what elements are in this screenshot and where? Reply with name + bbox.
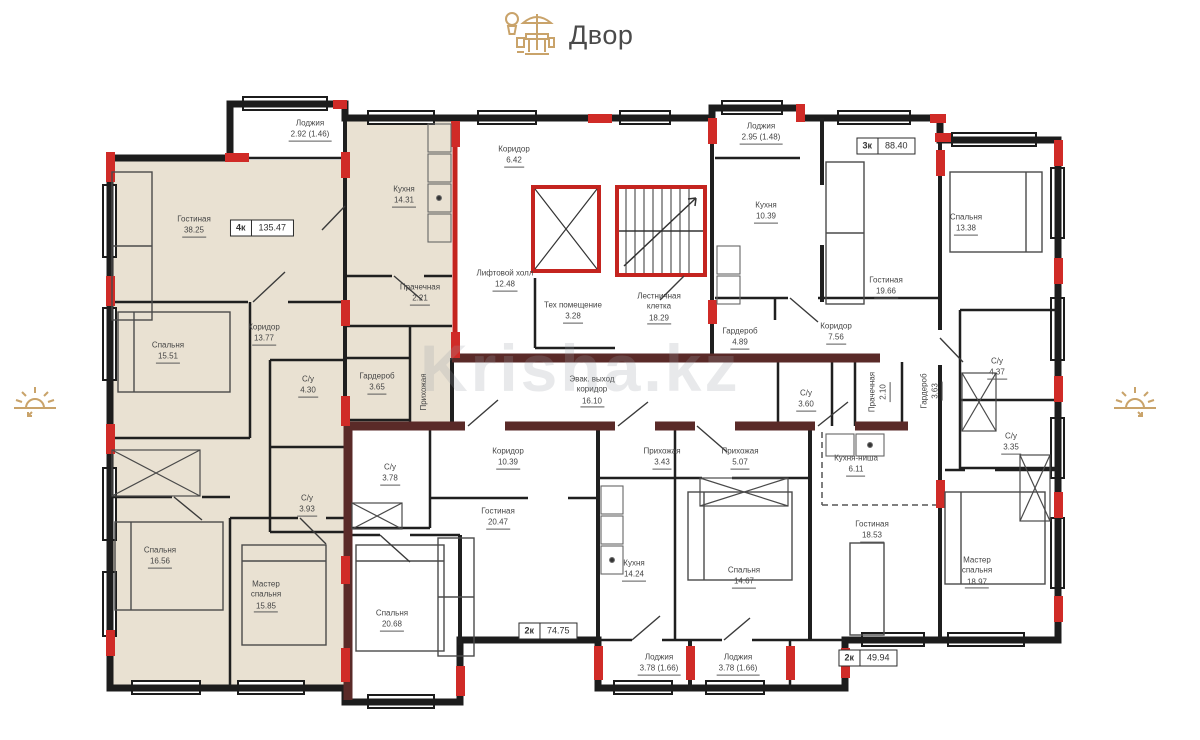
floor-plan: Лоджия2.92 (1.46)Гостиная38.25Кухня14.31… — [0, 0, 1200, 740]
apartment-fill-layer — [112, 121, 452, 686]
floor-plan-drawing — [0, 0, 1200, 740]
walls-core-red — [455, 121, 705, 358]
